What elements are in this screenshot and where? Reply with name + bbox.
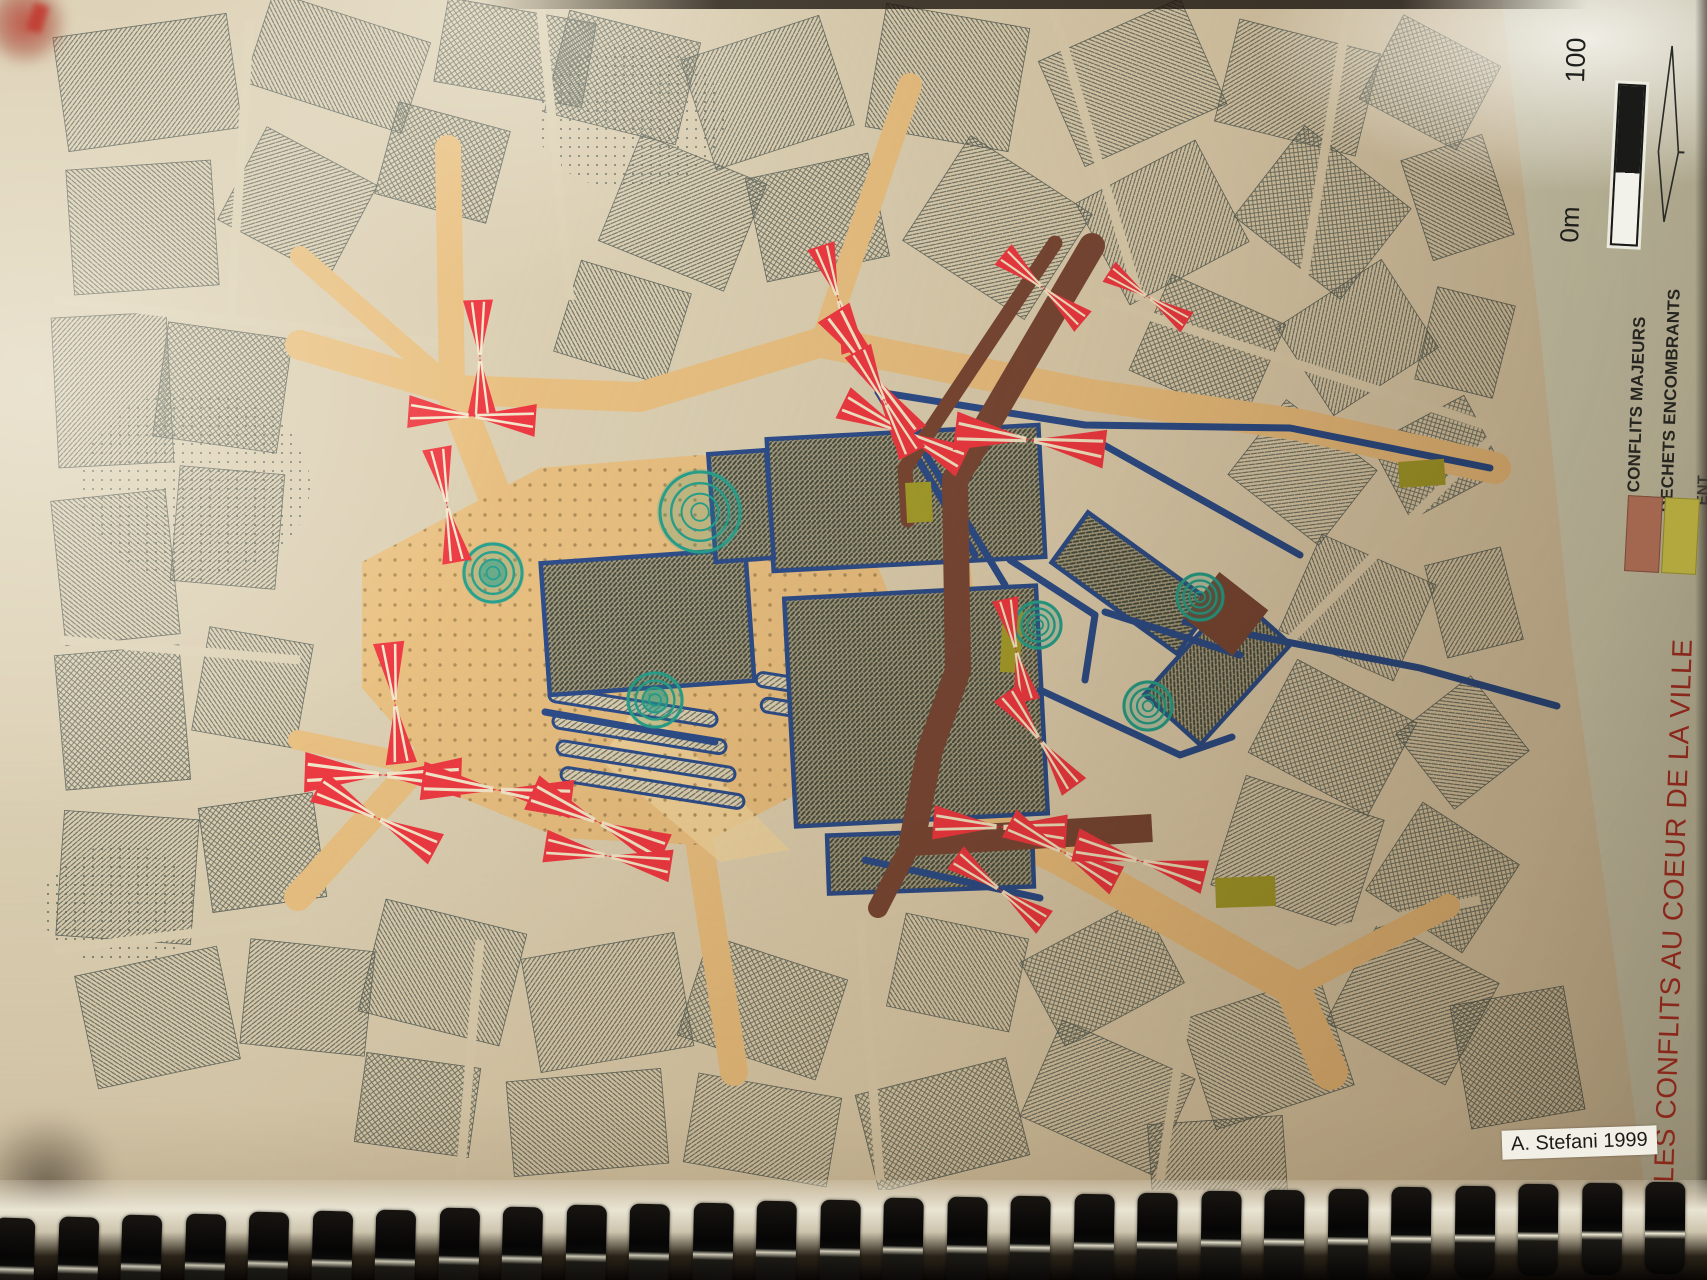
binding-tooth — [1073, 1194, 1115, 1280]
binding-tooth — [1645, 1181, 1686, 1273]
binding-tooth — [120, 1215, 163, 1280]
binding-tooth — [1390, 1187, 1431, 1279]
binding-tooth — [501, 1206, 543, 1280]
table-edge — [0, 0, 1707, 9]
binding-tooth — [946, 1197, 988, 1280]
binding-tooth — [819, 1199, 861, 1280]
binding-tooth — [1581, 1183, 1622, 1275]
binding-tooth — [374, 1209, 416, 1280]
binding-tooth — [1454, 1186, 1495, 1278]
legend-swatch-dechets — [1661, 497, 1700, 575]
binding-tooth — [1263, 1190, 1304, 1280]
binding-tooth — [247, 1212, 290, 1280]
binding-tooth — [437, 1208, 479, 1280]
binding-tooth — [882, 1198, 924, 1280]
binding-tooth — [755, 1201, 797, 1280]
binding-tooth — [1200, 1191, 1241, 1280]
legend-swatch-conflits — [1624, 495, 1663, 573]
author-credit: A. Stefani 1999 — [1502, 1125, 1658, 1159]
binding-tooth — [1136, 1192, 1177, 1280]
binding-tooth — [1327, 1188, 1368, 1280]
binding-tooth — [1518, 1184, 1559, 1276]
binding-tooth — [56, 1216, 99, 1280]
city-map — [0, 0, 1707, 1190]
binding-tooth — [1009, 1195, 1051, 1280]
binding-tooth — [692, 1202, 734, 1280]
scale-start-label: 0m — [1554, 206, 1586, 243]
north-arrow-icon — [1652, 43, 1690, 226]
photo-bound-map-page: 100 0m CONFLITS MAJEURS DECHETS ENCOMBRA… — [0, 0, 1707, 1280]
binding-tooth — [564, 1205, 606, 1280]
scale-end-label: 100 — [1560, 37, 1593, 83]
binding-tooth — [310, 1210, 352, 1280]
binding-tooth — [183, 1213, 226, 1280]
binding-tooth — [628, 1204, 670, 1280]
binding-tooth — [0, 1217, 35, 1280]
